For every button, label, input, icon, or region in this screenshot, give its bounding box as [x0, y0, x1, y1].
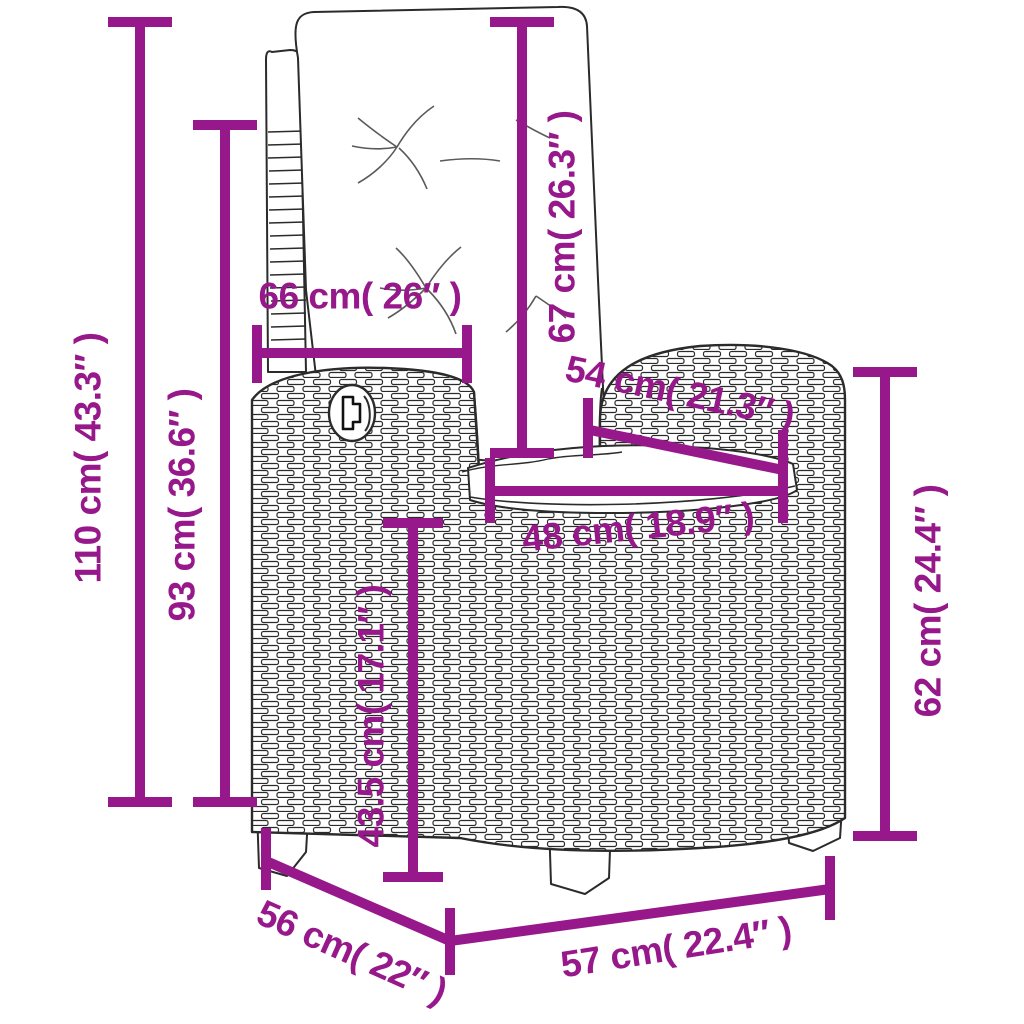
dim-label-total-height: 110 cm( 43.3″ ) [70, 333, 107, 584]
dim-label-backrest-length: 67 cm( 26.3″ ) [544, 111, 581, 344]
dim-label-back-width: 66 cm( 26″ ) [259, 278, 462, 315]
dim-line-back-height-93 [193, 125, 257, 802]
product-dimension-diagram: 110 cm( 43.3″ ) 93 cm( 36.6″ ) 66 cm( 26… [0, 0, 1024, 1024]
chair-dimension-drawing [0, 0, 1024, 1024]
dim-label-seat-height: 43.5 cm( 17.1″ ) [353, 585, 390, 848]
dim-label-arm-height: 62 cm( 24.4″ ) [910, 485, 947, 718]
dim-label-back-height: 93 cm( 36.6″ ) [164, 389, 201, 622]
recline-knob [329, 385, 375, 441]
